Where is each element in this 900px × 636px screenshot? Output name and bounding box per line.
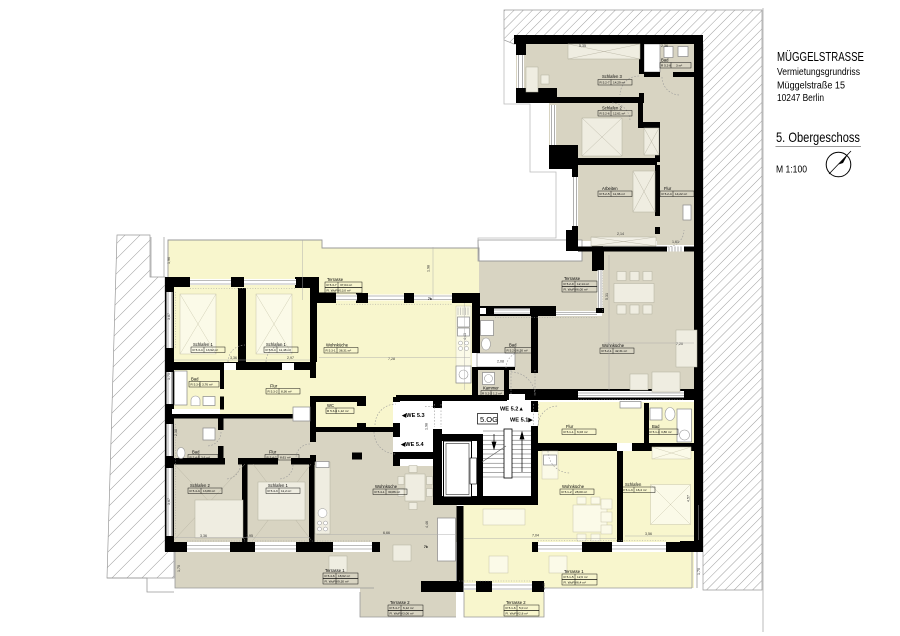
svg-text:5,0 m²: 5,0 m²: [519, 606, 528, 610]
svg-text:7b: 7b: [424, 545, 428, 549]
svg-text:10247 Berlin: 10247 Berlin: [777, 93, 824, 104]
svg-text:14,22 m²: 14,22 m²: [675, 192, 687, 196]
svg-text:Kammer: Kammer: [483, 386, 499, 391]
svg-text:R 5.1-5: R 5.1-5: [564, 575, 574, 579]
svg-text:R 5.2-8: R 5.2-8: [661, 64, 671, 68]
svg-text:Bad: Bad: [191, 377, 199, 382]
svg-text:Terrasse: Terrasse: [564, 276, 581, 281]
svg-text:6,4 m²: 6,4 m²: [577, 581, 586, 585]
svg-text:7b: 7b: [533, 313, 537, 317]
svg-text:6,00 m²: 6,00 m²: [577, 288, 588, 292]
svg-text:◀WE 5.4: ◀WE 5.4: [400, 441, 425, 448]
svg-text:Schlafen 3: Schlafen 3: [602, 74, 622, 79]
svg-text:R 5.3-5: R 5.3-5: [191, 383, 201, 387]
svg-text:Vermietungsgrundriss: Vermietungsgrundriss: [777, 67, 860, 78]
svg-text:13,80 m²: 13,80 m²: [203, 489, 215, 493]
svg-text:2,08: 2,08: [497, 360, 504, 364]
svg-text:R 5.1-1: R 5.1-1: [564, 430, 574, 434]
svg-text:Terrasse 1: Terrasse 1: [325, 568, 345, 573]
svg-text:1,40: 1,40: [542, 583, 546, 590]
svg-text:R 5.4-6: R 5.4-6: [325, 574, 335, 578]
svg-text:R 5.3-4: R 5.3-4: [266, 348, 276, 352]
svg-text:R 5.1-3: R 5.1-3: [623, 488, 633, 492]
svg-text:9,30 m²: 9,30 m²: [338, 580, 349, 584]
svg-text:1,2 m²: 1,2 m²: [493, 391, 502, 395]
svg-text:Bad: Bad: [509, 343, 517, 348]
svg-text:7b: 7b: [428, 297, 432, 301]
svg-text:R 5.4-3: R 5.4-3: [268, 489, 278, 493]
svg-text:4,43: 4,43: [463, 333, 467, 340]
svg-text:WC: WC: [327, 403, 334, 408]
svg-text:3,80 m²: 3,80 m²: [661, 430, 672, 434]
svg-text:1,98: 1,98: [425, 423, 429, 430]
svg-text:R 5.1-6: R 5.1-6: [506, 606, 516, 610]
svg-text:R 5.3-2: R 5.3-2: [268, 390, 278, 394]
svg-text:6,50 m²: 6,50 m²: [517, 349, 528, 353]
svg-text:R 5.3-1: R 5.3-1: [326, 349, 336, 353]
svg-text:◀WE 5.3: ◀WE 5.3: [401, 412, 425, 419]
svg-text:4,46: 4,46: [425, 521, 429, 528]
svg-text:R 5.3-7: R 5.3-7: [327, 283, 337, 287]
svg-text:Fl. WoFlV: Fl. WoFlV: [325, 580, 339, 584]
svg-text:Wohnküche: Wohnküche: [375, 484, 398, 489]
svg-text:M 1:100: M 1:100: [776, 164, 807, 176]
svg-text:1,61: 1,61: [672, 240, 679, 244]
svg-text:R 5.4-5: R 5.4-5: [190, 456, 200, 460]
svg-text:12,6 m²: 12,6 m²: [577, 575, 588, 579]
svg-text:7b: 7b: [177, 546, 181, 550]
svg-text:R 5.2-4: R 5.2-4: [662, 192, 672, 196]
svg-text:Wohnküche: Wohnküche: [326, 343, 349, 348]
svg-text:13,0 m²: 13,0 m²: [340, 289, 351, 293]
svg-text:1,70: 1,70: [697, 568, 701, 575]
svg-text:18,62 m²: 18,62 m²: [338, 574, 350, 578]
svg-text:1,96: 1,96: [167, 257, 171, 264]
svg-text:Bad: Bad: [661, 58, 669, 63]
svg-text:R 5.1-2: R 5.1-2: [562, 490, 572, 494]
svg-text:1,75: 1,75: [167, 373, 171, 380]
svg-text:11,2 m²: 11,2 m²: [281, 489, 291, 493]
svg-text:R 5.4-4: R 5.4-4: [190, 489, 200, 493]
svg-text:2,97: 2,97: [287, 356, 294, 360]
svg-text:R 5.2-1: R 5.2-1: [602, 349, 612, 353]
svg-text:WE 5.2▲: WE 5.2▲: [500, 407, 524, 413]
svg-text:Schlafen: Schlafen: [625, 482, 642, 487]
svg-text:7,20: 7,20: [676, 342, 683, 346]
svg-text:2,36: 2,36: [661, 44, 668, 48]
svg-text:Bad: Bad: [652, 424, 660, 429]
svg-text:1,98: 1,98: [427, 265, 431, 272]
svg-text:5. Obergeschoss: 5. Obergeschoss: [776, 129, 860, 145]
svg-text:R 5.2-5: R 5.2-5: [600, 192, 610, 196]
svg-text:12,14 m²: 12,14 m²: [577, 282, 589, 286]
svg-text:Terrasse: Terrasse: [327, 277, 344, 282]
svg-text:Terrasse 1: Terrasse 1: [564, 569, 584, 574]
svg-text:R 5.3-6: R 5.3-6: [327, 409, 337, 413]
svg-text:Flur: Flur: [269, 450, 277, 455]
svg-text:2,38: 2,38: [174, 429, 178, 436]
svg-text:R 5.3-4: R 5.3-4: [193, 348, 203, 352]
svg-text:3,67: 3,67: [167, 498, 171, 505]
svg-text:R 5.2-7: R 5.2-7: [600, 81, 610, 85]
svg-text:7b: 7b: [177, 282, 181, 286]
svg-text:Flur: Flur: [566, 424, 574, 429]
svg-text:Fl. WoFlV: Fl. WoFlV: [506, 612, 520, 616]
svg-text:Bad: Bad: [192, 450, 200, 455]
svg-text:6,12 m²: 6,12 m²: [403, 606, 414, 610]
svg-text:8,61 m²: 8,61 m²: [280, 456, 291, 460]
svg-text:3,56: 3,56: [645, 532, 652, 536]
svg-text:Schlafen 1: Schlafen 1: [268, 483, 288, 488]
svg-text:R 5.2-3: R 5.2-3: [507, 349, 517, 353]
svg-text:13,92 m²: 13,92 m²: [206, 348, 218, 352]
svg-text:7b: 7b: [697, 545, 701, 549]
svg-text:R 5.4-7: R 5.4-7: [390, 606, 400, 610]
svg-text:R 5.2-6: R 5.2-6: [600, 112, 610, 116]
svg-text:4,57: 4,57: [687, 495, 691, 502]
svg-text:1,70: 1,70: [177, 565, 181, 572]
svg-text:7,04: 7,04: [532, 534, 539, 538]
svg-text:3 m²: 3 m²: [676, 64, 682, 68]
svg-text:Fl. WoFlV: Fl. WoFlV: [564, 288, 578, 292]
svg-text:11,48 m²: 11,48 m²: [279, 348, 291, 352]
svg-text:3,76 m²: 3,76 m²: [202, 383, 213, 387]
svg-text:2,8 m²: 2,8 m²: [519, 612, 528, 616]
svg-text:R 5.4-2: R 5.4-2: [267, 456, 277, 460]
svg-text:Wohnküche: Wohnküche: [562, 484, 585, 489]
svg-text:1,12 m²: 1,12 m²: [338, 409, 349, 413]
svg-text:Terrasse 2: Terrasse 2: [390, 600, 410, 605]
svg-text:37,04 m²: 37,04 m²: [340, 283, 352, 287]
svg-text:Flur: Flur: [664, 186, 672, 191]
svg-text:12,61 m²: 12,61 m²: [613, 112, 625, 116]
svg-text:8,36 m²: 8,36 m²: [281, 390, 292, 394]
svg-text:Müggelstraße 15: Müggelstraße 15: [777, 81, 845, 92]
svg-text:R 5.4-1: R 5.4-1: [375, 490, 385, 494]
svg-text:3,87: 3,87: [167, 313, 171, 320]
svg-text:R 5.1-4: R 5.1-4: [650, 430, 660, 434]
svg-text:Schlafen 2: Schlafen 2: [190, 483, 210, 488]
svg-text:Terrasse 2: Terrasse 2: [506, 600, 526, 605]
svg-text:5,35: 5,35: [579, 44, 586, 48]
svg-text:6,03 m²: 6,03 m²: [577, 430, 588, 434]
svg-text:2,14: 2,14: [617, 232, 624, 236]
svg-text:30,86 m²: 30,86 m²: [388, 490, 400, 494]
svg-text:3,6 m²: 3,6 m²: [201, 456, 210, 460]
svg-text:38,31 m²: 38,31 m²: [339, 349, 351, 353]
svg-text:5.OG: 5.OG: [480, 415, 498, 424]
svg-text:R 5.2-9: R 5.2-9: [564, 282, 574, 286]
svg-text:Fl. WoFlV: Fl. WoFlV: [564, 581, 578, 585]
svg-text:MÜGGELSTRASSE: MÜGGELSTRASSE: [777, 50, 864, 64]
svg-text:Arbeiten: Arbeiten: [602, 186, 618, 191]
svg-text:3,36: 3,36: [230, 356, 237, 360]
svg-text:Flur: Flur: [270, 384, 278, 389]
svg-text:WE 5.1▶: WE 5.1▶: [510, 417, 533, 424]
svg-text:Schlafen 1: Schlafen 1: [266, 342, 286, 347]
svg-text:5,31: 5,31: [605, 293, 609, 300]
svg-text:11,96 m²: 11,96 m²: [613, 192, 625, 196]
svg-text:16,4 m²: 16,4 m²: [636, 488, 647, 492]
svg-text:42,31 m²: 42,31 m²: [615, 349, 627, 353]
svg-text:R 5.2-2: R 5.2-2: [482, 391, 492, 395]
svg-text:3,06 m²: 3,06 m²: [403, 612, 414, 616]
svg-text:Schlafen 1: Schlafen 1: [193, 342, 213, 347]
svg-text:Wohnküche: Wohnküche: [602, 343, 625, 348]
svg-text:Fl. WoFlV: Fl. WoFlV: [390, 612, 404, 616]
svg-text:28,00 m²: 28,00 m²: [575, 490, 587, 494]
svg-text:14,29 m²: 14,29 m²: [613, 81, 625, 85]
svg-text:Fl. WoFlV: Fl. WoFlV: [327, 289, 341, 293]
svg-text:Schlafen 2: Schlafen 2: [602, 106, 622, 111]
